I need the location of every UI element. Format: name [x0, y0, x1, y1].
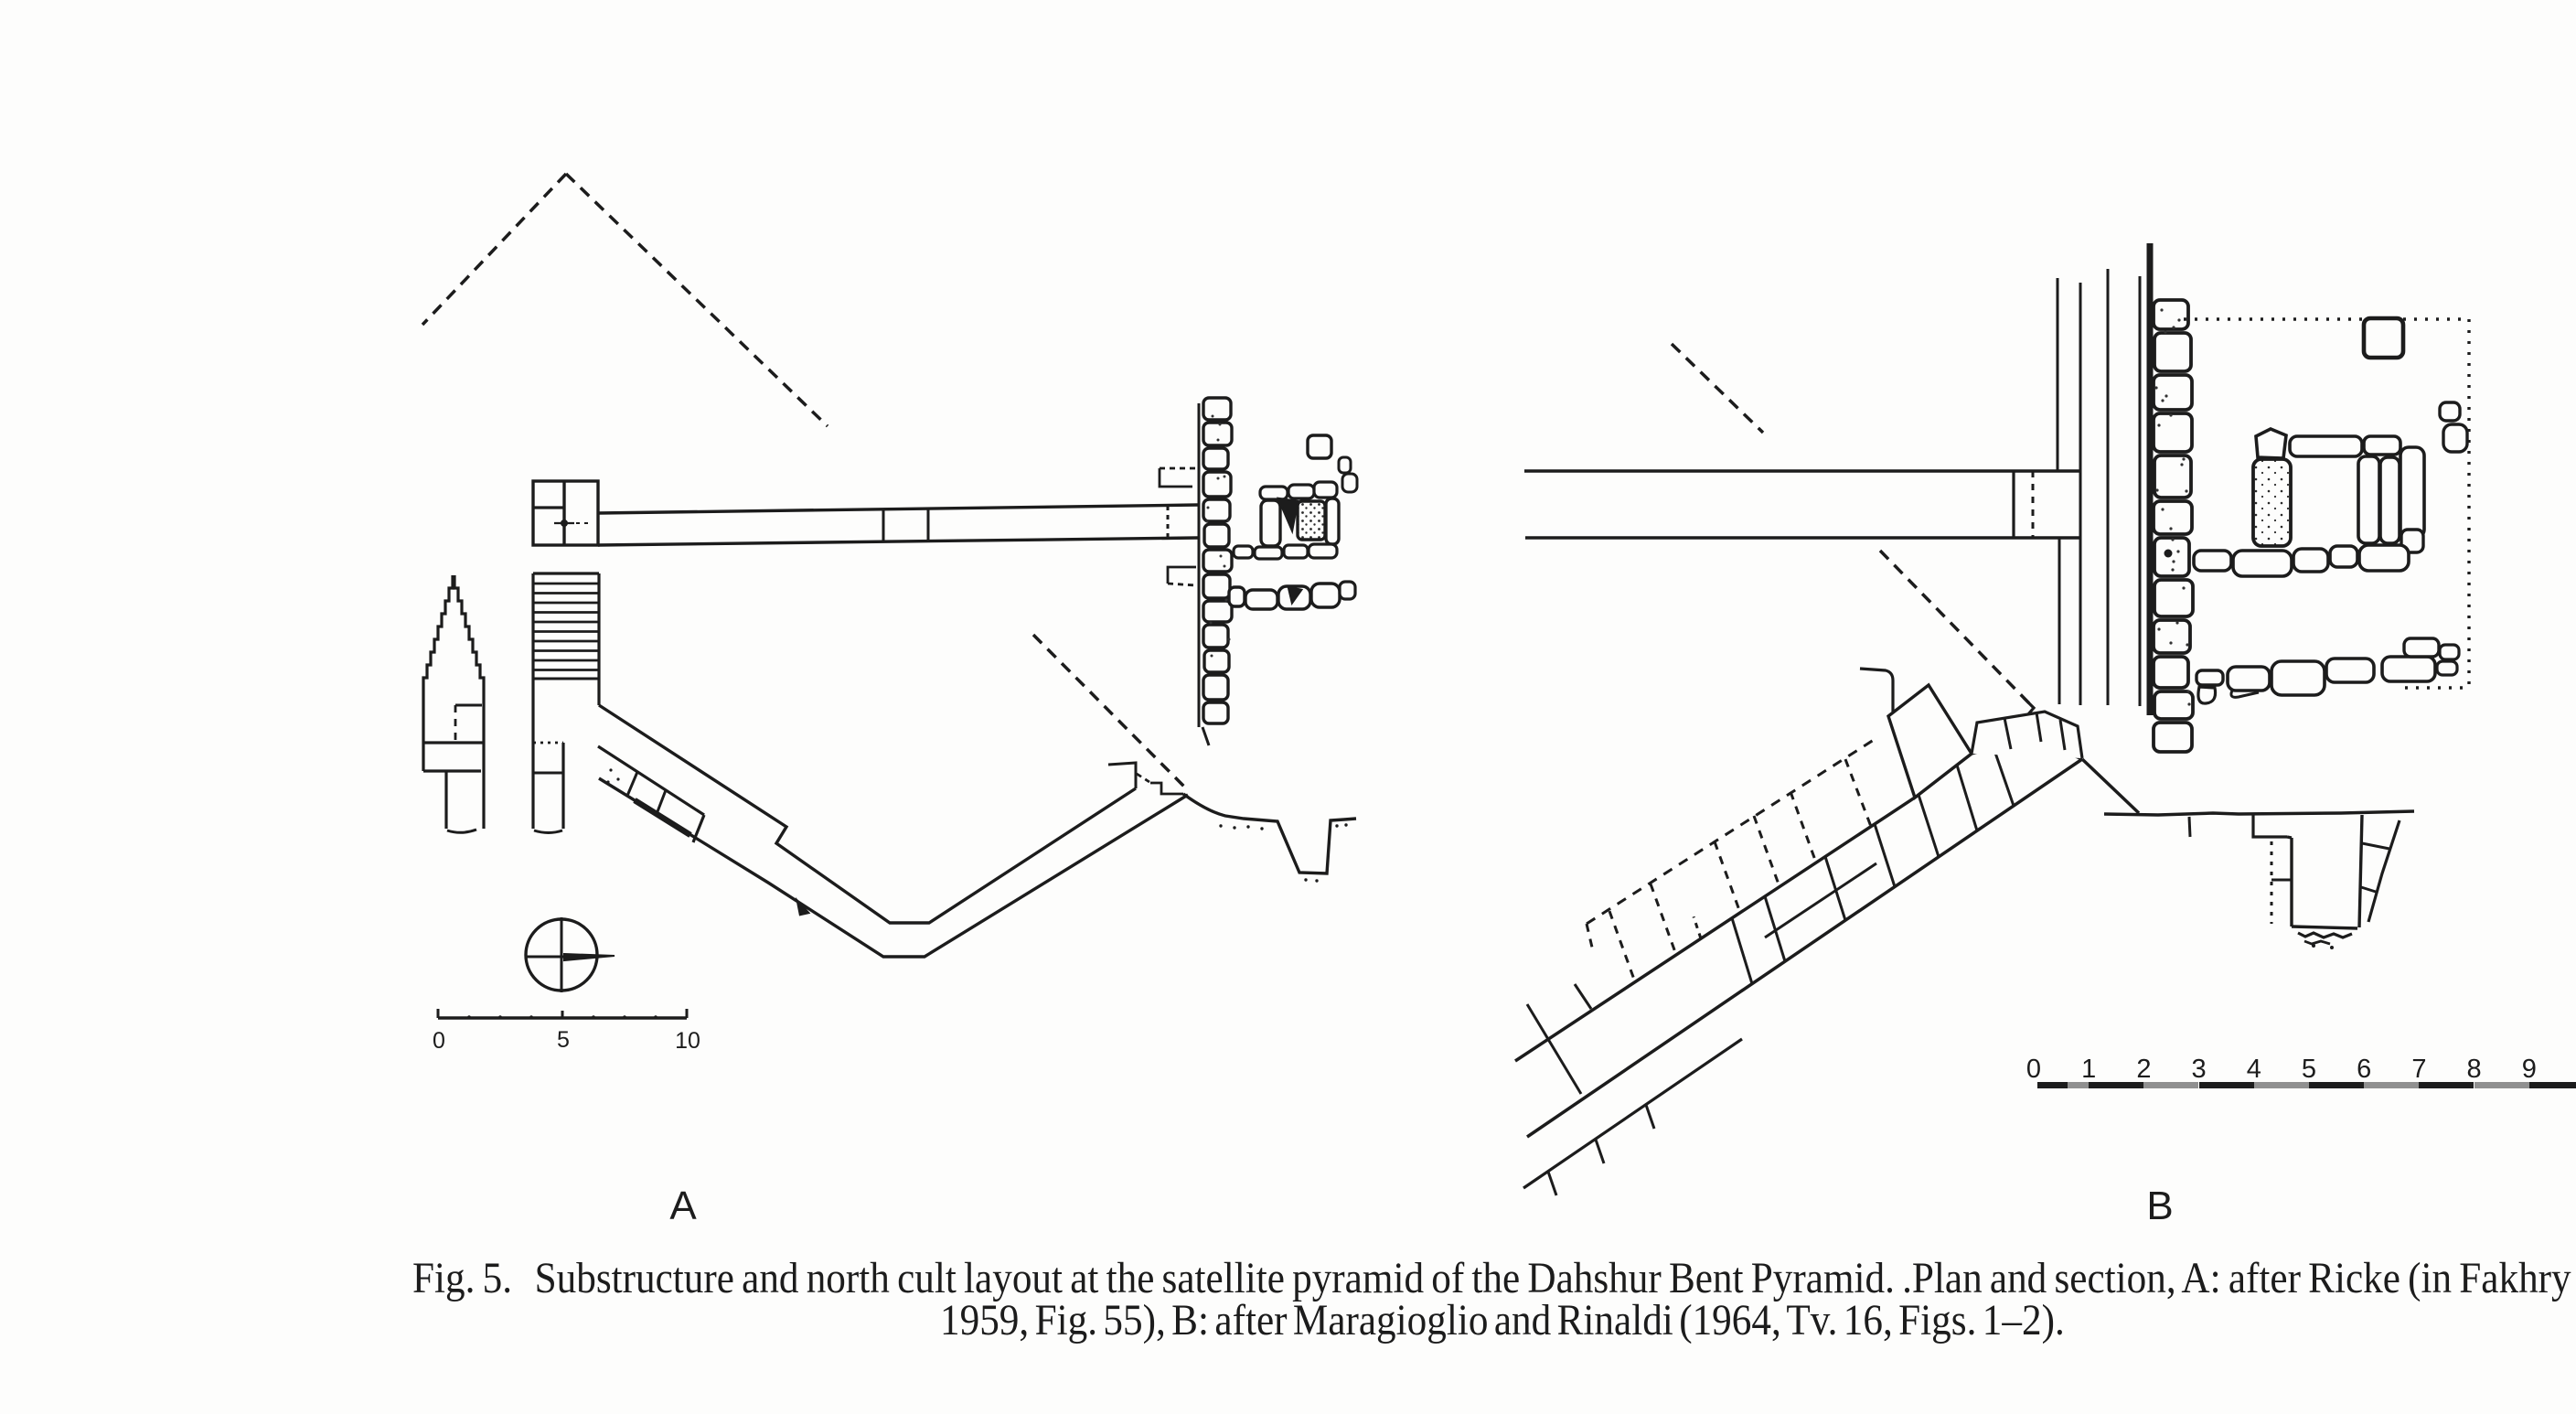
svg-text:5: 5 — [2302, 1055, 2316, 1084]
svg-text:9: 9 — [2522, 1055, 2537, 1084]
svg-text:0: 0 — [433, 1028, 445, 1054]
svg-text:1: 1 — [2081, 1055, 2096, 1084]
svg-text:2: 2 — [2136, 1055, 2151, 1084]
svg-text:0: 0 — [2026, 1055, 2041, 1084]
svg-text:4: 4 — [2247, 1055, 2261, 1084]
svg-text:7: 7 — [2411, 1055, 2426, 1084]
svg-text:5: 5 — [557, 1027, 570, 1053]
svg-text:6: 6 — [2357, 1055, 2371, 1084]
svg-text:8: 8 — [2467, 1055, 2482, 1084]
svg-text:B: B — [2146, 1184, 2173, 1228]
svg-text:10: 10 — [675, 1028, 700, 1054]
svg-text:A: A — [669, 1184, 697, 1228]
svg-text:3: 3 — [2192, 1055, 2207, 1084]
